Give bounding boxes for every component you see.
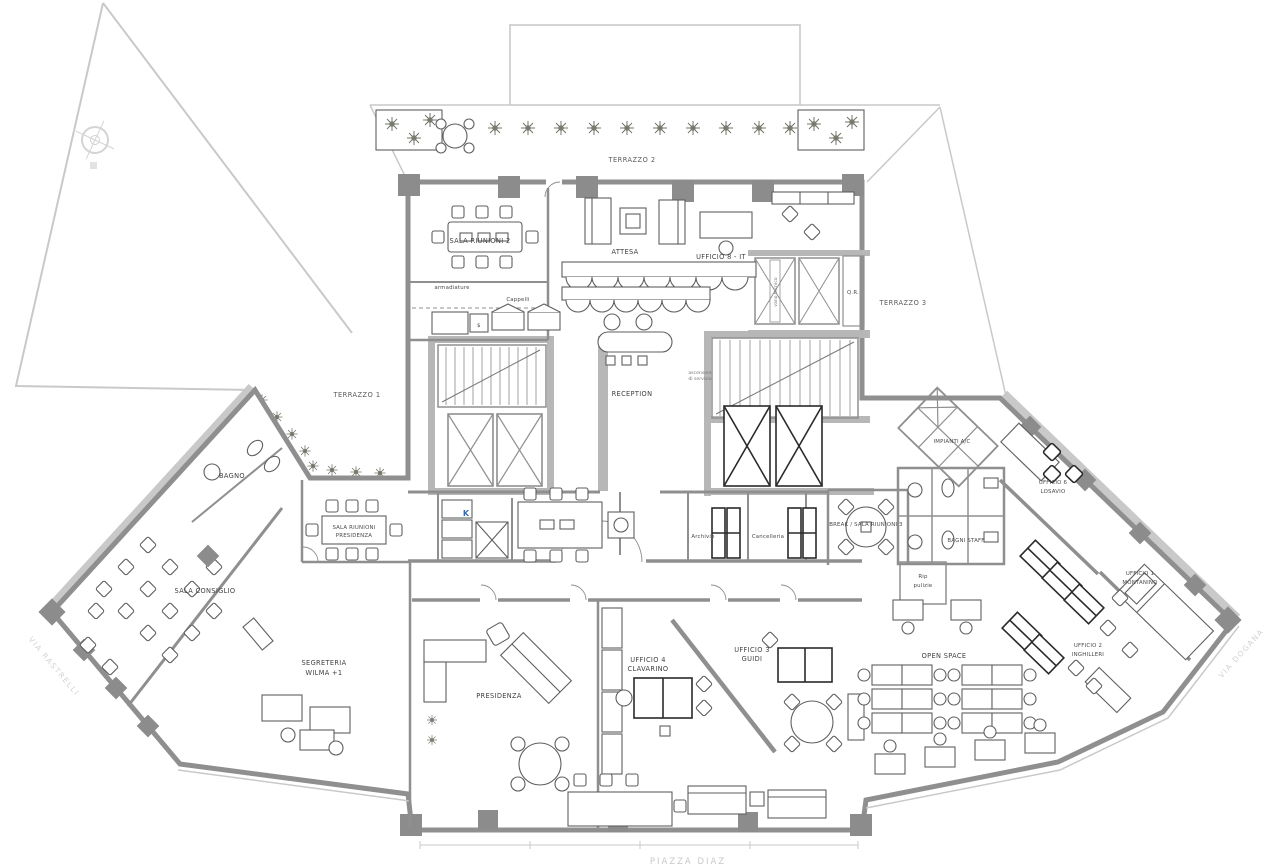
open-space-label: OPEN SPACE	[922, 652, 967, 660]
sala-consiglio-label: SALA CONSIGLIO	[175, 587, 236, 595]
ufficio3-label-1: UFFICIO 3	[734, 646, 770, 654]
property-line-w	[16, 3, 252, 390]
ufficio3-label-2: GUIDI	[742, 655, 763, 663]
bagni-staff-label: BAGNI STAFF	[947, 538, 984, 544]
property-line-ne	[103, 3, 352, 333]
cancelleria-label: Cancelleria	[752, 534, 784, 540]
terrace-table	[443, 124, 467, 148]
ufficio1-label-2: MONTANINO	[1122, 580, 1157, 586]
reception-label: RECEPTION	[612, 390, 653, 398]
armadiature-label: armadiature	[434, 285, 470, 291]
ufficio8-label: UFFICIO 8 - IT	[696, 253, 746, 261]
segreteria-label-1: SEGRETERIA	[302, 659, 347, 667]
adjacent-building-notch	[510, 25, 800, 105]
ufficio1-label-1: UFFICIO 1	[1126, 571, 1154, 577]
ascensore-label-2: di servizio	[688, 376, 711, 382]
street-left-label: VIA RASTRELLI	[27, 635, 82, 698]
presidenza-label: PRESIDENZA	[476, 692, 522, 700]
ascensore-label-1: ascensore	[688, 370, 711, 376]
ufficio2-label-2: INGHILLERI	[1072, 652, 1104, 658]
terrazzo2-label: TERRAZZO 2	[607, 156, 655, 164]
ufficio6-label-2: LOSAVIO	[1041, 489, 1066, 495]
ufficio4-label-2: CLAVARINO	[628, 665, 669, 673]
kitchen-label: K	[463, 509, 470, 518]
terrazzo3-label: TERRAZZO 3	[878, 299, 926, 307]
archivio-label: Archivio	[691, 534, 714, 540]
rip-label-1: Rip	[918, 574, 928, 580]
terrace2-planters	[376, 110, 864, 153]
compass-base-mark	[90, 162, 97, 169]
s-box-label: $	[477, 323, 481, 329]
segreteria-label-2: WILMA +1	[306, 669, 343, 677]
cappelli-label: Cappelli	[506, 297, 529, 303]
sala-riunioni-presidenza-label-1: SALA RIUNIONI	[332, 525, 375, 531]
ufficio6-label-1: UFFICIO 6	[1039, 480, 1068, 486]
floor-plan-canvas: TERRAZZO 2 TERRAZZO 1 TERRAZZO 3 SALA RI…	[0, 0, 1280, 868]
ufficio2-label-1: UFFICIO 2	[1074, 643, 1102, 649]
impianti-label: IMPIANTI A/C	[933, 439, 970, 445]
vano-tecnico-label: vano tecnico	[773, 277, 779, 307]
rip-label-2: pulizie	[914, 583, 933, 589]
sala-riunioni-2-label: SALA RIUNIONI 2	[449, 237, 510, 245]
sala-riunioni-presidenza-label-2: PRESIDENZA	[336, 533, 372, 539]
dimension-line	[420, 841, 858, 849]
break-room-label: BREAK / SALA RIUNIONI 3	[829, 522, 903, 528]
piazza-diaz-label: PIAZZA DIAZ	[650, 857, 726, 867]
floor-plan-drawing: TERRAZZO 2 TERRAZZO 1 TERRAZZO 3 SALA RI…	[0, 0, 1280, 868]
attesa-label: ATTESA	[611, 248, 638, 256]
qr-label: Q.R.	[847, 290, 859, 296]
terrazzo1-label: TERRAZZO 1	[332, 391, 380, 399]
ufficio4-label-1: UFFICIO 4	[630, 656, 666, 664]
bagno-label: BAGNO	[219, 472, 245, 480]
